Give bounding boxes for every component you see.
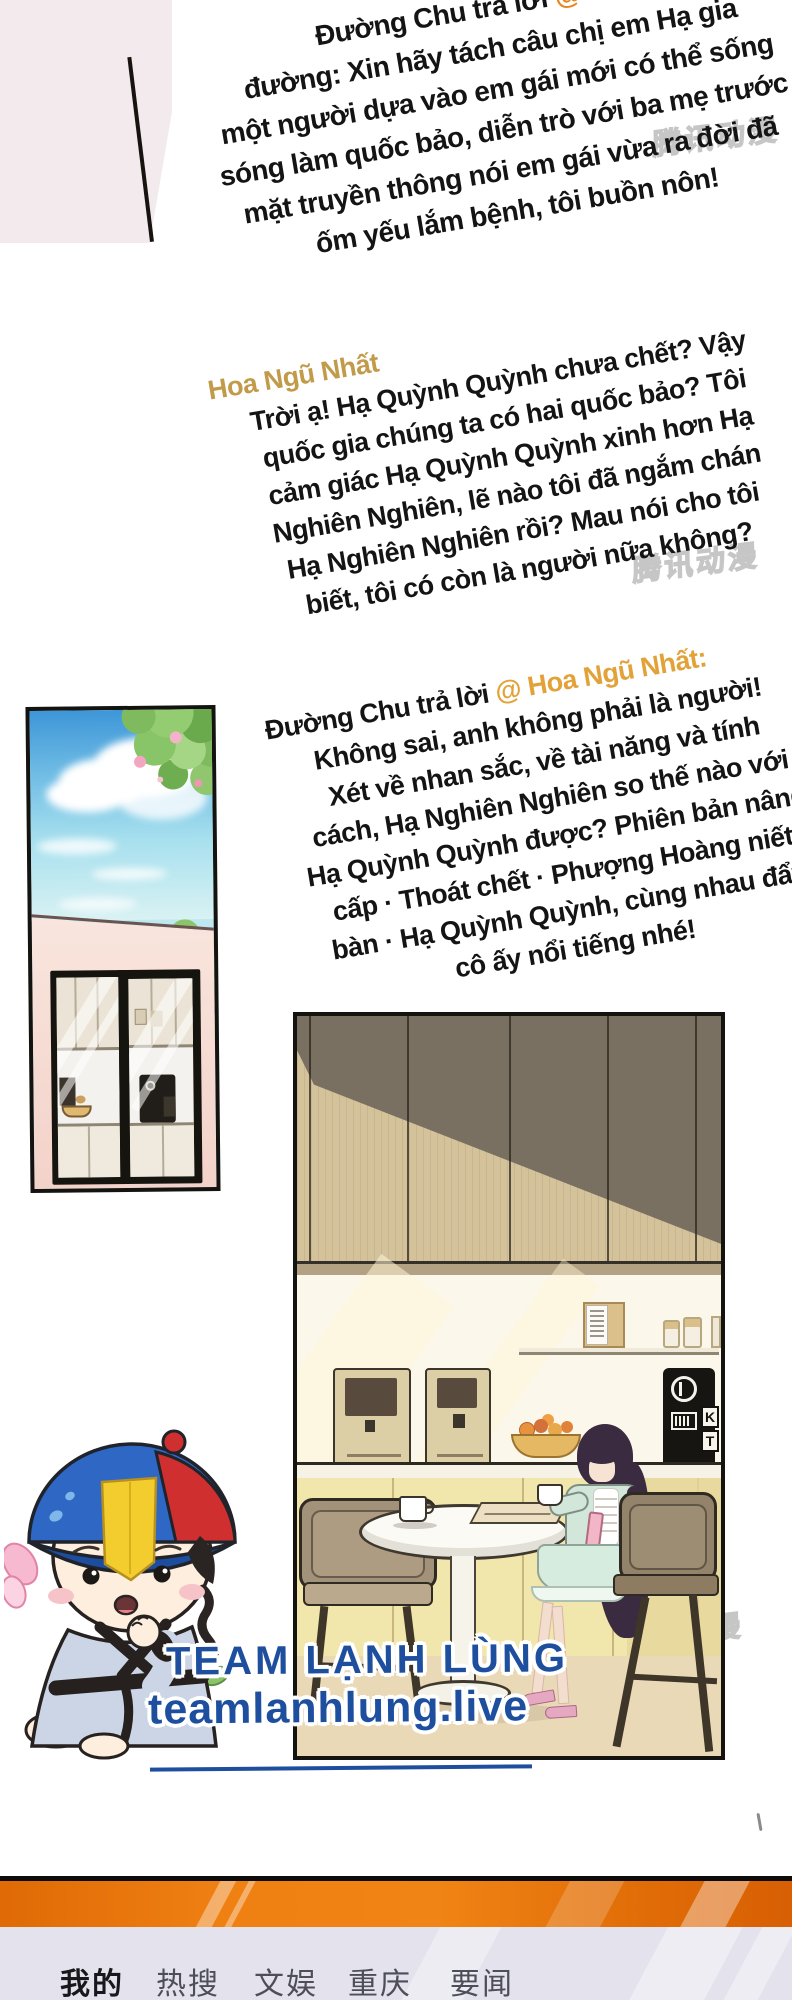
tab-entertainment[interactable]: 文娱 (254, 1959, 318, 2000)
comic-page: 腾讯动漫 腾讯动漫 腾讯动漫 Đường Chu trả lời @ Tôi g… (0, 0, 792, 2000)
tabbar-accent-band (0, 1881, 792, 1927)
comic-panel-balcony (25, 705, 220, 1193)
team-site-link[interactable]: teamlanhlung.live (148, 1682, 529, 1734)
team-credit: TEAM LẠNH LÙNG (166, 1636, 568, 1685)
tab-hot-search[interactable]: 热搜 (156, 1959, 220, 2000)
comment-1: Đường Chu trả lời @ Tôi g đường: Xin hãy… (192, 0, 792, 279)
tab-chongqing[interactable]: 重庆 (348, 1959, 412, 2000)
tab-headlines[interactable]: 要闻 (450, 1959, 514, 2000)
comment-3: Đường Chu trả lời @ Hoa Ngũ Nhất: Không … (262, 623, 792, 1012)
window-frame (50, 969, 202, 1185)
tab-mine[interactable]: 我的 (60, 1959, 124, 2000)
flowers (134, 756, 146, 768)
cup (537, 1484, 563, 1506)
stray-mark (756, 1813, 762, 1831)
sky (30, 709, 214, 921)
tabbar: 我的 热搜 文娱 重庆 要闻 (0, 1927, 792, 2000)
team-site-underline (150, 1764, 532, 1771)
